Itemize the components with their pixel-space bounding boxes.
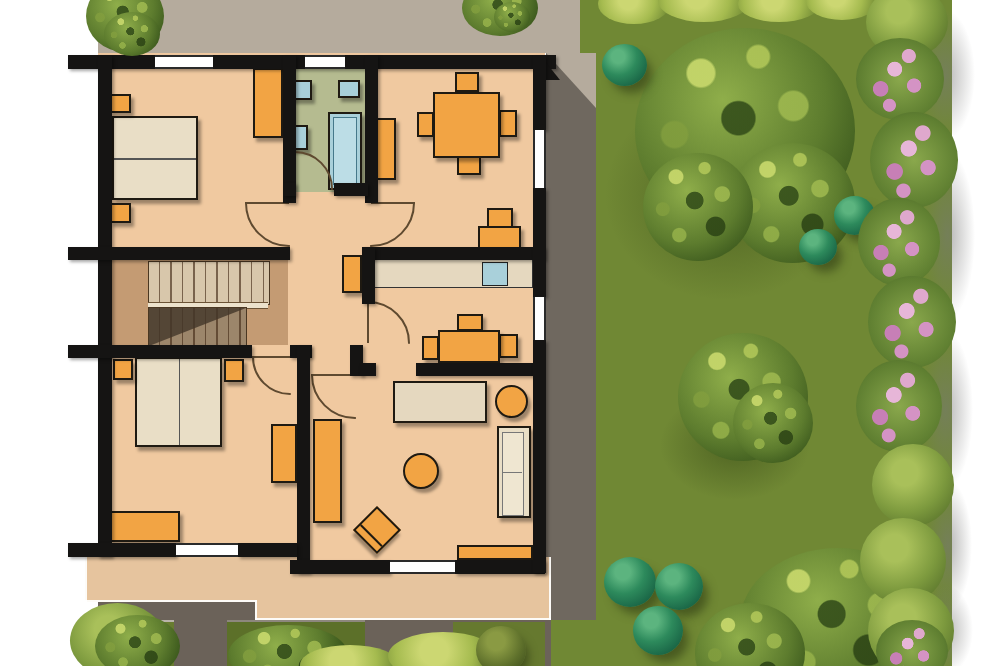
wall-living-top — [360, 363, 376, 376]
sofa-seat — [502, 432, 524, 516]
round-bush — [655, 563, 703, 610]
dresser — [110, 511, 180, 542]
sideboard — [393, 381, 487, 423]
bathtub-inner — [333, 117, 357, 185]
bathroom-sink — [338, 80, 360, 98]
patio-terrace — [85, 556, 255, 602]
patio-edge — [85, 600, 257, 602]
nightstand — [224, 359, 244, 382]
door-leaf — [252, 356, 290, 358]
kitchen-sink — [482, 262, 508, 286]
wall-exterior-right — [533, 340, 546, 573]
stair-flight-lower — [148, 307, 247, 347]
wall-bath-bottom — [283, 183, 296, 196]
kitchen-table — [438, 330, 500, 363]
wall-kitchen-left — [362, 247, 375, 304]
double-bed — [112, 116, 198, 200]
nightstand — [113, 359, 133, 380]
wall-spine-bottom — [297, 345, 310, 573]
wall-dining-left — [365, 55, 378, 203]
wall-kitchen-top — [362, 247, 545, 260]
side-walkway-right — [546, 53, 596, 620]
door-leaf — [311, 374, 355, 376]
olive-bush — [476, 626, 526, 666]
round-bush — [633, 606, 683, 655]
wall-exterior-left — [98, 55, 112, 557]
wardrobe — [253, 68, 283, 138]
patio-edge — [255, 618, 551, 620]
low-shelf — [457, 545, 533, 560]
wall-exterior-right — [533, 188, 546, 297]
round-side-table — [495, 385, 528, 418]
desk-chair — [487, 208, 513, 228]
nightstand — [110, 203, 131, 223]
door-leaf — [367, 301, 369, 343]
wall-stub-left — [68, 55, 98, 69]
kitchen-chair — [499, 334, 518, 358]
sofa-cushion-line — [502, 472, 522, 473]
stair-dark-return — [149, 308, 246, 346]
wardrobe — [313, 419, 342, 523]
window — [176, 543, 238, 557]
wall-living-bottom — [455, 560, 545, 574]
dining-chair — [457, 156, 481, 175]
nightstand — [110, 94, 131, 113]
wall-living-top — [416, 363, 540, 376]
window — [533, 130, 546, 188]
wall-bed2-bottom — [238, 543, 297, 557]
round-coffee-table — [403, 453, 439, 489]
double-bed — [135, 357, 222, 447]
wall-bed1-bath — [283, 55, 296, 203]
patio-edge — [549, 557, 551, 620]
bed-split-line — [114, 158, 196, 160]
wall-exterior-right — [533, 55, 546, 130]
overhang-tree-topcenter — [494, 2, 530, 32]
window — [305, 55, 345, 69]
patio-edge — [255, 600, 257, 620]
right-hedge — [872, 444, 954, 526]
kitchen-chair — [422, 336, 439, 360]
stair-flight-upper — [148, 261, 270, 305]
wardrobe — [271, 424, 297, 483]
wall-bath-bottom — [334, 183, 368, 196]
right-hedge-pink — [856, 38, 944, 120]
dining-table — [433, 92, 500, 158]
bed-split-line — [179, 359, 181, 445]
wall-living-bottom — [290, 560, 390, 574]
patio-edge — [85, 556, 87, 602]
kitchen-chair — [457, 314, 483, 331]
dining-chair — [455, 72, 479, 92]
wall-cabinet — [342, 255, 362, 293]
dining-chair — [499, 110, 517, 137]
right-hedge-pink — [858, 198, 940, 286]
right-hedge-pink — [868, 276, 956, 368]
overhang-tree-topleft — [104, 12, 160, 56]
window — [155, 55, 213, 69]
kitchen-counter — [368, 259, 533, 288]
wall-bed2-bottom — [68, 543, 176, 557]
floor-plan-scene — [0, 0, 1000, 666]
wall-stairhall-top — [68, 247, 290, 260]
round-bush — [602, 44, 647, 86]
wall-stairhall-bottom — [68, 345, 252, 358]
round-bush — [799, 229, 837, 265]
right-hedge-pink — [856, 360, 942, 452]
dining-chair — [417, 112, 434, 137]
sideboard — [375, 118, 396, 180]
medium-tree — [678, 333, 818, 473]
window — [533, 297, 546, 340]
right-hedge-pink — [870, 112, 958, 208]
tree-canopy — [733, 383, 813, 463]
window — [390, 560, 455, 574]
tree-canopy — [643, 153, 753, 261]
bathtub — [328, 112, 362, 190]
round-bush — [604, 557, 656, 607]
sofa — [497, 426, 531, 518]
